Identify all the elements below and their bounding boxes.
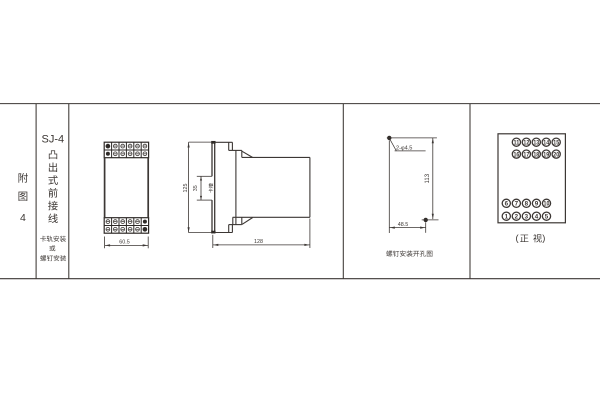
svg-text:10: 10: [544, 201, 550, 208]
svg-text:): ): [542, 232, 545, 243]
svg-text:60.5: 60.5: [119, 240, 130, 246]
svg-text:20: 20: [553, 151, 559, 158]
svg-text:13: 13: [533, 139, 539, 146]
svg-text:2-φ4.5: 2-φ4.5: [396, 145, 412, 151]
svg-text:15: 15: [553, 139, 559, 146]
svg-text:18: 18: [533, 151, 539, 158]
svg-text:17: 17: [523, 151, 529, 158]
svg-text:3: 3: [525, 213, 529, 220]
svg-text:9: 9: [535, 201, 539, 208]
svg-text:128: 128: [254, 239, 263, 245]
svg-text:1: 1: [505, 213, 509, 220]
svg-text:125: 125: [183, 184, 189, 193]
svg-text:4: 4: [535, 213, 539, 220]
svg-text:4: 4: [20, 212, 26, 224]
svg-text:35: 35: [193, 185, 199, 191]
svg-text:8: 8: [525, 201, 529, 208]
svg-text:12: 12: [523, 139, 529, 146]
svg-text:19: 19: [543, 151, 549, 158]
svg-text:11: 11: [513, 139, 519, 146]
svg-text:113: 113: [425, 173, 431, 183]
svg-text:5: 5: [545, 213, 549, 220]
svg-text:2: 2: [515, 213, 519, 220]
svg-text:48.5: 48.5: [398, 222, 409, 228]
svg-text:SJ-4: SJ-4: [41, 133, 64, 145]
svg-text:7: 7: [515, 201, 519, 208]
svg-text:16: 16: [513, 151, 519, 158]
svg-text:6: 6: [505, 201, 509, 208]
svg-text:14: 14: [543, 139, 549, 146]
